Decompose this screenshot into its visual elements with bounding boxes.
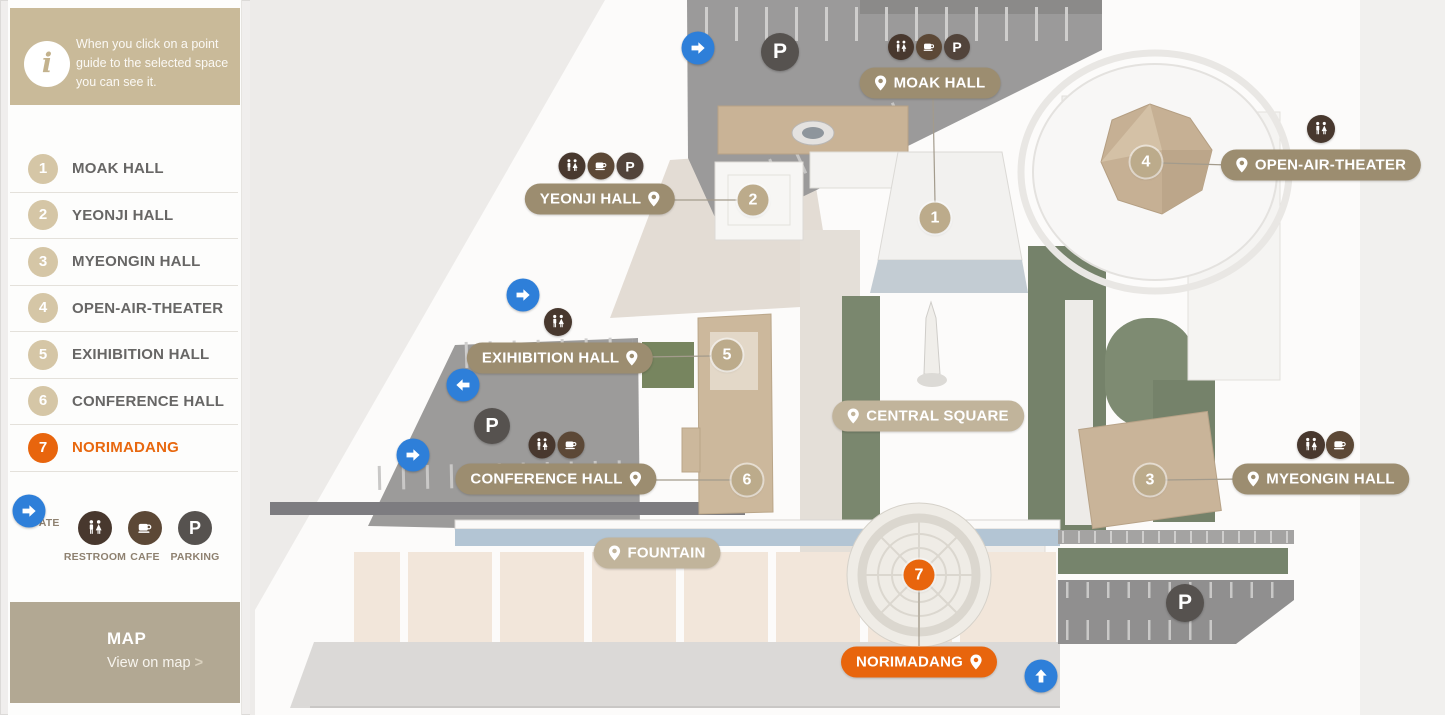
map-marker-1-moak[interactable]: 1: [920, 203, 951, 234]
restroom-icon: [559, 153, 586, 180]
sidebar: i When you click on a point guide to the…: [8, 0, 242, 715]
map-marker-6-conference[interactable]: 6: [732, 465, 763, 496]
map-label-text: YEONJI HALL: [540, 191, 641, 208]
map-label-text: FOUNTAIN: [628, 545, 706, 562]
gate-arrow-icon: [397, 439, 430, 472]
map-label-central-square[interactable]: CENTRAL SQUARE: [832, 401, 1024, 432]
map-label-text: NORIMADANG: [856, 654, 963, 671]
map-label-moak-hall[interactable]: MOAK HALL: [860, 68, 1001, 99]
gate-arrow-icon: [507, 279, 540, 312]
parking-icon: P: [761, 33, 799, 71]
restroom-icon: [1307, 115, 1335, 143]
chevron-right-icon: >: [195, 655, 203, 671]
map-label-text: MOAK HALL: [894, 75, 986, 92]
campus-guide-page: i When you click on a point guide to the…: [0, 0, 1445, 715]
map-label-text: MYEONGIN HALL: [1266, 471, 1394, 488]
map-label-conference-hall[interactable]: CONFERENCE HALL: [455, 464, 656, 495]
map-legend: GATE RESTROOM: [20, 511, 220, 563]
info-icon: i: [24, 41, 70, 87]
restroom-icon: [544, 308, 572, 336]
parking-icon: P: [178, 511, 212, 545]
map-label-fountain[interactable]: FOUNTAIN: [594, 538, 721, 569]
sidebar-item-yeonji-hall[interactable]: 2 YEONJI HALL: [10, 193, 238, 240]
legend-cafe: CAFE: [120, 511, 170, 563]
map-label-norimadang[interactable]: NORIMADANG: [841, 647, 997, 678]
restroom-icon: [529, 432, 556, 459]
view-on-map-link[interactable]: View on map>: [107, 655, 203, 671]
item-label: EXIHIBITION HALL: [72, 346, 209, 363]
cafe-icon: [916, 34, 942, 60]
map-label-text: CENTRAL SQUARE: [866, 408, 1009, 425]
map-marker-5-exihibition[interactable]: 5: [712, 340, 743, 371]
legend-restroom: RESTROOM: [70, 511, 120, 563]
location-pin-icon: [847, 409, 859, 424]
map-label-text: CONFERENCE HALL: [470, 471, 622, 488]
item-number-badge: 6: [28, 386, 58, 416]
parking-icon: P: [474, 408, 510, 444]
sidebar-item-conference-hall[interactable]: 6 CONFERENCE HALL: [10, 379, 238, 426]
parking-icon: P: [617, 153, 644, 180]
sidebar-item-open-air-theater[interactable]: 4 OPEN-AIR-THEATER: [10, 286, 238, 333]
item-number-badge: 2: [28, 200, 58, 230]
cafe-icon: [588, 153, 615, 180]
item-number-badge: 3: [28, 247, 58, 277]
map-marker-3-myeongin[interactable]: 3: [1135, 465, 1166, 496]
item-number-badge: 4: [28, 293, 58, 323]
legend-parking: P PARKING: [170, 511, 220, 563]
item-number-badge: 7: [28, 433, 58, 463]
restroom-icon: [888, 34, 914, 60]
map-label-text: OPEN-AIR-THEATER: [1255, 157, 1406, 174]
location-pin-icon: [626, 351, 638, 366]
cafe-icon: [128, 511, 162, 545]
restroom-icon: [1297, 431, 1325, 459]
info-text: When you click on a point guide to the s…: [76, 35, 234, 91]
map-marker-7-norimadang[interactable]: 7: [904, 560, 935, 591]
sidebar-item-norimadang[interactable]: 7 NORIMADANG: [10, 425, 238, 472]
gate-arrow-icon: [447, 369, 480, 402]
legend-label: RESTROOM: [64, 551, 126, 563]
hall-list: 1 MOAK HALL 2 YEONJI HALL 3 MYEONGIN HAL…: [10, 146, 238, 472]
item-label: NORIMADANG: [72, 439, 179, 456]
info-box: i When you click on a point guide to the…: [10, 8, 240, 105]
legend-label: PARKING: [170, 551, 219, 563]
map-label-yeonji-hall[interactable]: YEONJI HALL: [525, 184, 675, 215]
gate-arrow-icon: [1025, 660, 1058, 693]
mapbox-title: MAP: [107, 629, 146, 649]
map-label-text: EXIHIBITION HALL: [482, 350, 619, 367]
view-on-map-box[interactable]: MAP View on map>: [10, 602, 240, 703]
location-pin-icon: [970, 655, 982, 670]
location-pin-icon: [1247, 472, 1259, 487]
item-label: CONFERENCE HALL: [72, 393, 224, 410]
legend-gate: GATE: [20, 511, 70, 563]
map-label-exihibition-hall[interactable]: EXIHIBITION HALL: [467, 343, 653, 374]
parking-icon: P: [1166, 584, 1204, 622]
cafe-icon: [1326, 431, 1354, 459]
item-label: OPEN-AIR-THEATER: [72, 300, 223, 317]
location-pin-icon: [875, 76, 887, 91]
sidebar-item-exihibition-hall[interactable]: 5 EXIHIBITION HALL: [10, 332, 238, 379]
location-pin-icon: [648, 192, 660, 207]
map-marker-2-yeonji[interactable]: 2: [738, 185, 769, 216]
gate-arrow-icon: [682, 32, 715, 65]
item-number-badge: 5: [28, 340, 58, 370]
location-pin-icon: [1236, 158, 1248, 173]
item-label: MYEONGIN HALL: [72, 253, 200, 270]
campus-map-illustration: [250, 0, 1445, 715]
location-pin-icon: [609, 546, 621, 561]
sidebar-item-moak-hall[interactable]: 1 MOAK HALL: [10, 146, 238, 193]
map-marker-4-open-air[interactable]: 4: [1131, 147, 1162, 178]
cafe-icon: [558, 432, 585, 459]
item-number-badge: 1: [28, 154, 58, 184]
legend-label: CAFE: [130, 551, 159, 563]
restroom-icon: [78, 511, 112, 545]
gate-arrow-icon: [12, 495, 45, 528]
map-label-myeongin-hall[interactable]: MYEONGIN HALL: [1232, 464, 1409, 495]
item-label: YEONJI HALL: [72, 207, 173, 224]
map-label-open-air-theater[interactable]: OPEN-AIR-THEATER: [1221, 150, 1421, 181]
item-label: MOAK HALL: [72, 160, 164, 177]
parking-icon: P: [944, 34, 970, 60]
sidebar-item-myeongin-hall[interactable]: 3 MYEONGIN HALL: [10, 239, 238, 286]
location-pin-icon: [630, 472, 642, 487]
